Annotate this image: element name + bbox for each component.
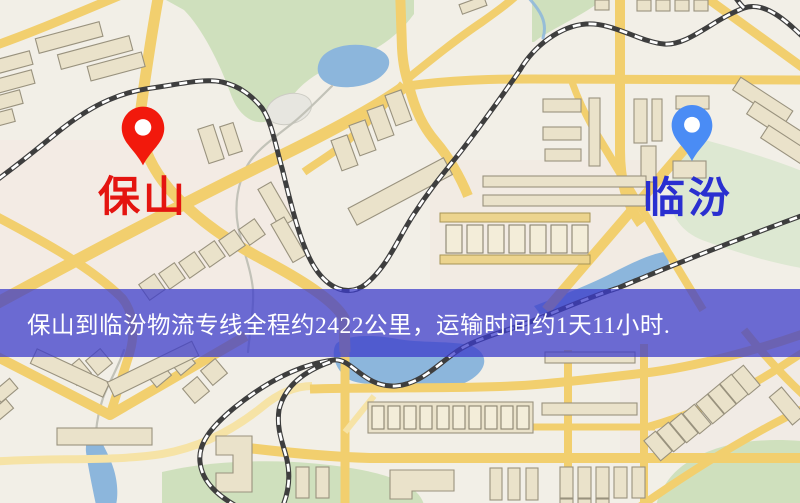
destination-pin-icon[interactable]: [670, 102, 714, 164]
origin-pin-icon[interactable]: [120, 104, 166, 168]
map-canvas: [0, 0, 800, 503]
route-info-banner: 保山到临汾物流专线全程约2422公里，运输时间约1天11小时.: [0, 289, 800, 357]
destination-label: 临汾: [608, 177, 768, 221]
origin-label: 保山: [63, 176, 223, 220]
route-info-text: 保山到临汾物流专线全程约2422公里，运输时间约1天11小时.: [0, 306, 670, 340]
map-view: 保山 临汾 保山到临汾物流专线全程约2422公里，运输时间约1天11小时.: [0, 0, 800, 503]
